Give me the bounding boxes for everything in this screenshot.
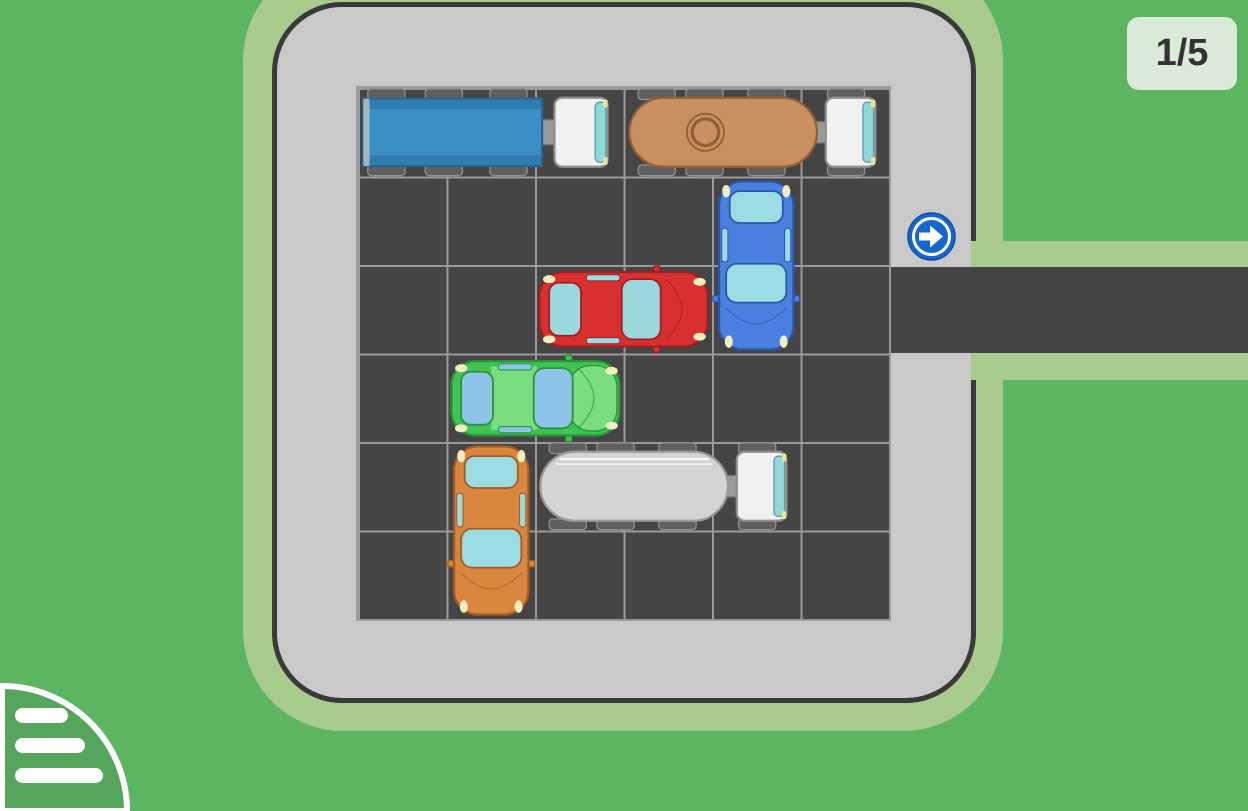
exit-arrow-sign — [907, 212, 956, 261]
vehicle-orange-car[interactable] — [447, 442, 536, 619]
arrow-right-icon — [907, 212, 956, 261]
vehicle-red-car[interactable] — [535, 265, 712, 354]
hamburger-menu-icon — [0, 676, 140, 811]
level-badge-text: 1/5 — [1156, 32, 1209, 75]
vehicle-blue-truck[interactable] — [358, 88, 624, 177]
vehicle-blue-car[interactable] — [712, 177, 801, 354]
vehicle-green-car[interactable] — [447, 354, 624, 443]
game-stage: 1/5 — [0, 0, 1248, 811]
level-badge: 1/5 — [1127, 17, 1237, 90]
vehicle-tan-tanker-truck[interactable] — [624, 88, 890, 177]
vehicle-white-tanker-truck[interactable] — [535, 442, 801, 531]
exit-road — [887, 267, 1248, 353]
menu-button[interactable] — [0, 676, 140, 811]
